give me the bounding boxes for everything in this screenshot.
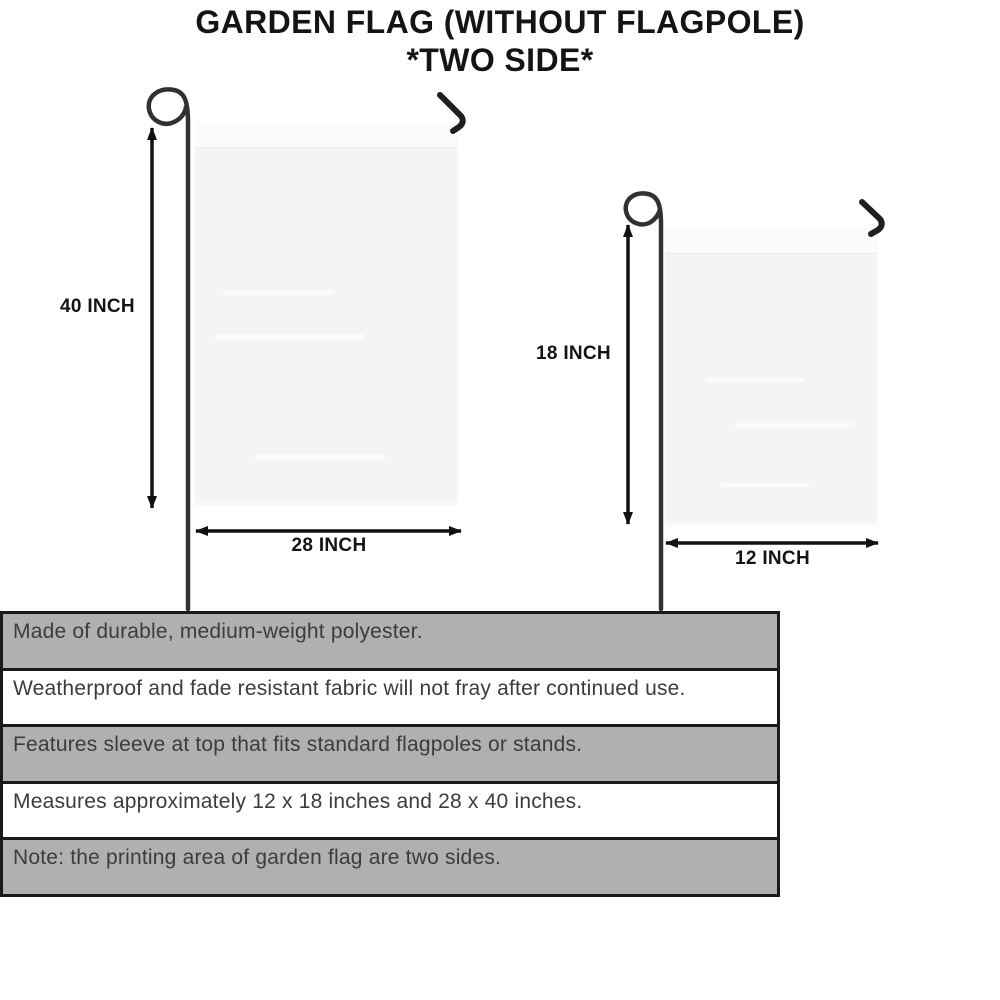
feature-row: Measures approximately 12 x 18 inches an… [3, 781, 777, 838]
feature-text: Measures approximately 12 x 18 inches an… [13, 789, 582, 815]
page-title: GARDEN FLAG (WITHOUT FLAGPOLE) *TWO SIDE… [0, 4, 1000, 80]
product-info-image: GARDEN FLAG (WITHOUT FLAGPOLE) *TWO SIDE… [0, 0, 1000, 1000]
small-flag-sleeve [665, 228, 878, 254]
title-line-2: *TWO SIDE* [0, 42, 1000, 80]
flag-crease [255, 454, 385, 459]
large-flag [195, 122, 458, 506]
features-table: Made of durable, medium-weight polyester… [0, 611, 780, 897]
small-flag-width-label: 12 INCH [666, 548, 879, 570]
feature-text: Note: the printing area of garden flag a… [13, 845, 501, 871]
feature-row: Weatherproof and fade resistant fabric w… [3, 668, 777, 725]
flag-crease [705, 378, 805, 382]
large-flag-sleeve [195, 122, 458, 148]
small-flag [665, 228, 878, 526]
large-flagpole-icon [149, 89, 188, 609]
small-flagpole-icon [626, 193, 661, 609]
large-flag-width-label: 28 INCH [196, 535, 462, 557]
small-flag-height-label: 18 INCH [536, 343, 611, 365]
feature-row: Made of durable, medium-weight polyester… [3, 614, 777, 668]
title-line-1: GARDEN FLAG (WITHOUT FLAGPOLE) [0, 4, 1000, 42]
large-flag-height-label: 40 INCH [60, 296, 135, 318]
feature-text: Features sleeve at top that fits standar… [13, 732, 582, 758]
flag-crease [720, 483, 810, 487]
feature-text: Made of durable, medium-weight polyester… [13, 619, 423, 645]
feature-row: Note: the printing area of garden flag a… [3, 837, 777, 894]
feature-row: Features sleeve at top that fits standar… [3, 724, 777, 781]
feature-text: Weatherproof and fade resistant fabric w… [13, 676, 686, 702]
flag-crease [735, 423, 855, 427]
flag-crease [223, 290, 333, 295]
flag-crease [215, 334, 365, 339]
